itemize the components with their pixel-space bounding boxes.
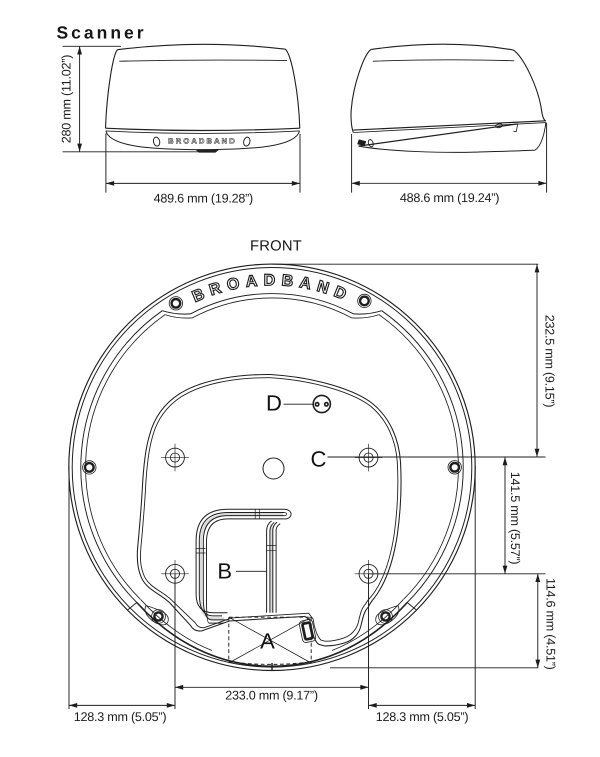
svg-text:233.0 mm (9.17”): 233.0 mm (9.17”) [225, 689, 318, 703]
svg-text:A: A [260, 629, 275, 654]
svg-text:280 mm (11.02”): 280 mm (11.02”) [60, 55, 74, 143]
svg-text:232.5 mm (9.15”): 232.5 mm (9.15”) [543, 315, 557, 408]
svg-text:Scanner: Scanner [57, 23, 147, 43]
svg-text:C: C [311, 446, 327, 471]
svg-text:128.3 mm (5.05”): 128.3 mm (5.05”) [74, 710, 167, 724]
svg-text:128.3 mm (5.05”): 128.3 mm (5.05”) [376, 710, 469, 724]
svg-text:D: D [266, 391, 282, 416]
svg-text:BROADBAND: BROADBAND [168, 137, 237, 146]
svg-text:FRONT: FRONT [250, 238, 302, 254]
svg-text:141.5 mm (5.57”): 141.5 mm (5.57”) [508, 472, 522, 565]
svg-text:B: B [217, 558, 232, 583]
svg-text:488.6 mm (19.24”): 488.6 mm (19.24”) [400, 191, 499, 205]
svg-text:114.6 mm (4.51”): 114.6 mm (4.51”) [543, 578, 557, 670]
svg-text:489.6 mm (19.28”): 489.6 mm (19.28”) [154, 192, 253, 206]
svg-text:BROADBAND: BROADBAND [190, 272, 354, 306]
